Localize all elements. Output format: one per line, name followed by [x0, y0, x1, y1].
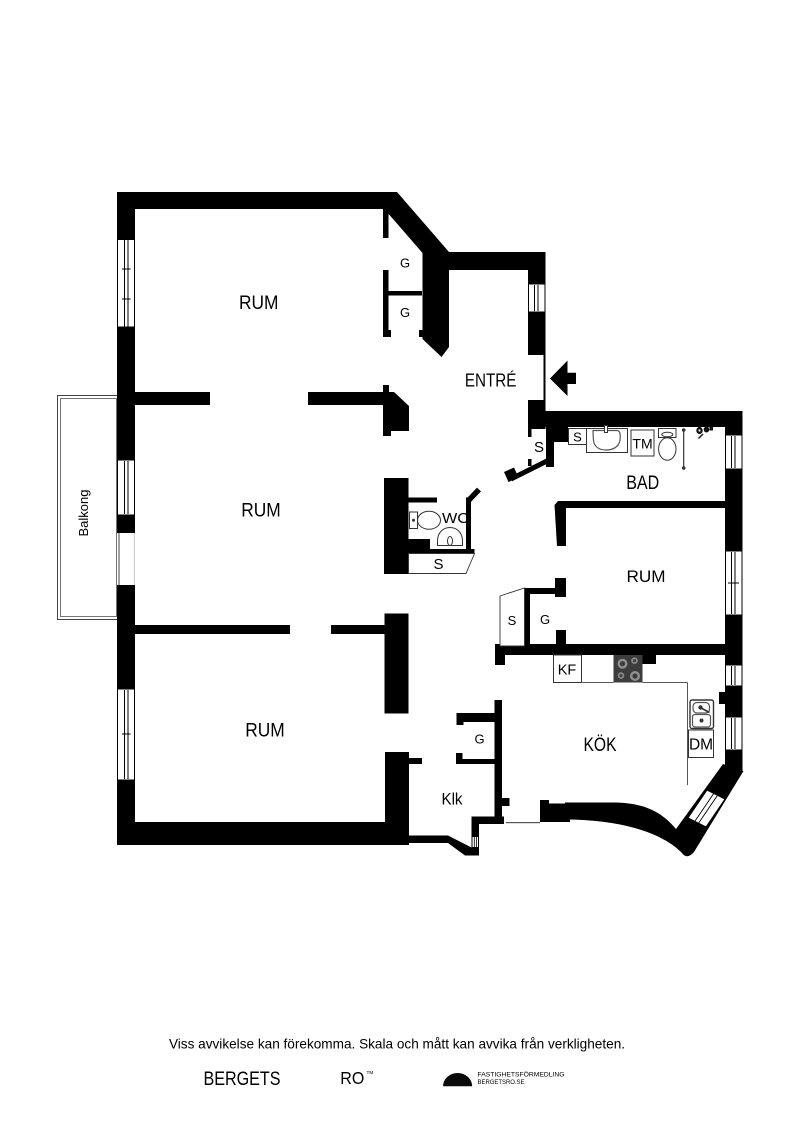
svg-text:G: G — [400, 256, 410, 271]
svg-text:BERGETSRO.SE: BERGETSRO.SE — [478, 1079, 525, 1086]
svg-text:FASTIGHETSFÖRMEDLING: FASTIGHETSFÖRMEDLING — [478, 1072, 565, 1079]
svg-text:S: S — [573, 430, 582, 445]
svg-text:ENTRÉ: ENTRÉ — [465, 371, 517, 391]
svg-text:Viss avvikelse kan förekomma.: Viss avvikelse kan förekomma. Skala och … — [169, 1037, 625, 1052]
svg-text:G: G — [540, 612, 550, 627]
svg-text:G: G — [474, 732, 484, 747]
svg-text:BERGETS: BERGETS — [204, 1069, 281, 1090]
svg-text:Klk: Klk — [442, 790, 463, 809]
svg-text:DM: DM — [689, 737, 713, 754]
svg-text:RUM: RUM — [241, 501, 281, 522]
svg-text:S: S — [534, 439, 544, 456]
svg-text:S: S — [508, 613, 517, 628]
svg-text:G: G — [400, 305, 410, 320]
svg-text:BAD: BAD — [626, 473, 659, 494]
svg-text:KÖK: KÖK — [584, 735, 617, 756]
svg-text:KF: KF — [558, 663, 577, 679]
svg-text:RUM: RUM — [239, 293, 279, 314]
svg-text:RO: RO — [340, 1068, 364, 1088]
svg-text:Balkong: Balkong — [76, 490, 91, 537]
svg-text:RUM: RUM — [245, 721, 285, 742]
svg-text:TM: TM — [367, 1070, 374, 1076]
svg-text:RUM: RUM — [627, 568, 666, 586]
svg-text:WC: WC — [442, 510, 469, 527]
svg-text:TM: TM — [632, 436, 652, 452]
svg-text:S: S — [433, 556, 443, 573]
